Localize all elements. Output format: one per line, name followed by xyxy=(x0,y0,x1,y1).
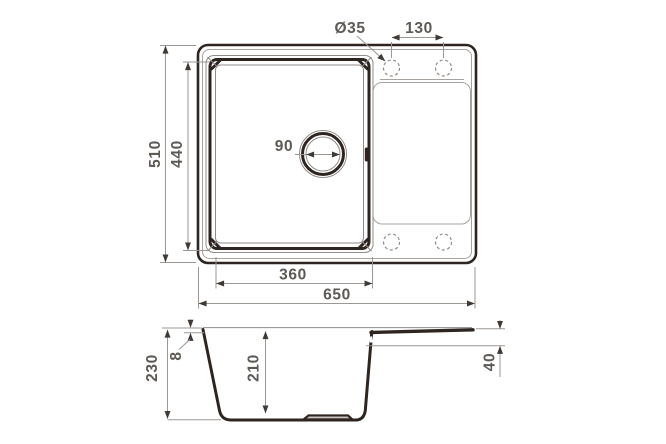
technical-drawing-page: 90 Ø35 130 510 440 xyxy=(0,0,666,444)
dim-label-bowl-width: 360 xyxy=(279,267,307,284)
top-view: 90 Ø35 130 510 440 xyxy=(147,20,476,309)
section-wall-highlight xyxy=(371,337,372,343)
dim-label-overall-width: 650 xyxy=(323,287,351,304)
drainboard-panel xyxy=(373,83,471,225)
dim-bowl-depth: 440 xyxy=(169,62,210,251)
dim-label-hole-spacing: 130 xyxy=(405,20,433,37)
dim-hole-spacing: 130 xyxy=(392,20,444,58)
dim-label-drainboard-height: 40 xyxy=(482,353,499,371)
tap-holes xyxy=(384,60,452,250)
section-drainboard-surface xyxy=(371,330,473,333)
dim-label-drain: 90 xyxy=(275,138,293,155)
overflow-slot xyxy=(365,148,368,162)
section-bowl-profile xyxy=(203,330,372,421)
dim-label-rim-thickness: 8 xyxy=(168,351,185,360)
dim-overall-width: 650 xyxy=(199,267,476,309)
dim-tap-hole-diameter: Ø35 xyxy=(334,20,385,61)
dim-label-bowl-depth: 440 xyxy=(169,140,186,168)
tap-hole xyxy=(436,234,452,250)
dim-rim-thickness: 8 xyxy=(168,320,205,361)
dim-overall-height: 230 xyxy=(144,328,221,420)
dim-bowl-height: 210 xyxy=(246,332,266,414)
dim-label-hole-diameter: Ø35 xyxy=(334,20,365,37)
dim-label-bowl-height: 210 xyxy=(246,354,263,382)
dim-label-overall-depth: 510 xyxy=(147,140,164,168)
section-view: 230 8 210 40 xyxy=(144,320,505,421)
tap-hole xyxy=(384,60,400,76)
tap-hole xyxy=(436,60,452,76)
dim-drainboard-height: 40 xyxy=(476,320,505,377)
tap-hole xyxy=(384,234,400,250)
dim-label-overall-height: 230 xyxy=(144,354,161,382)
sink-drawing-svg: 90 Ø35 130 510 440 xyxy=(0,0,666,444)
